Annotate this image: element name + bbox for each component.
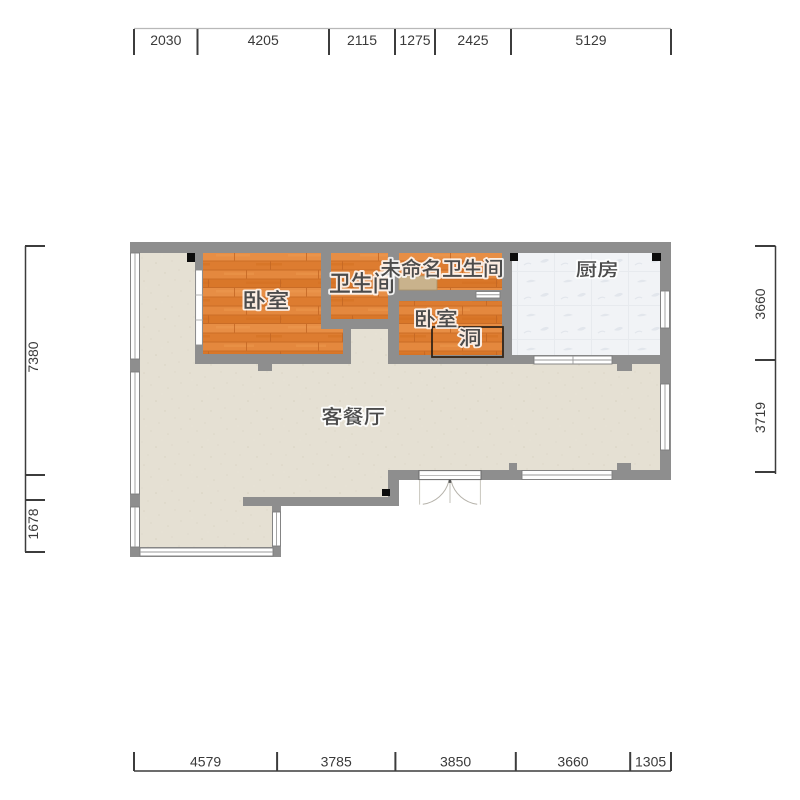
svg-text:1275: 1275 bbox=[399, 32, 430, 48]
svg-text:3719: 3719 bbox=[752, 402, 768, 433]
svg-text:4579: 4579 bbox=[190, 754, 221, 770]
svg-text:2030: 2030 bbox=[150, 32, 181, 48]
svg-text:2425: 2425 bbox=[457, 32, 488, 48]
svg-text:1678: 1678 bbox=[25, 508, 41, 539]
svg-text:3785: 3785 bbox=[321, 754, 352, 770]
svg-text:3850: 3850 bbox=[440, 754, 471, 770]
svg-text:5129: 5129 bbox=[575, 32, 606, 48]
svg-text:4205: 4205 bbox=[248, 32, 279, 48]
svg-text:7380: 7380 bbox=[25, 341, 41, 372]
svg-text:2115: 2115 bbox=[347, 32, 377, 48]
svg-text:3660: 3660 bbox=[752, 288, 768, 319]
svg-text:1305: 1305 bbox=[635, 754, 666, 770]
svg-text:3660: 3660 bbox=[557, 754, 588, 770]
